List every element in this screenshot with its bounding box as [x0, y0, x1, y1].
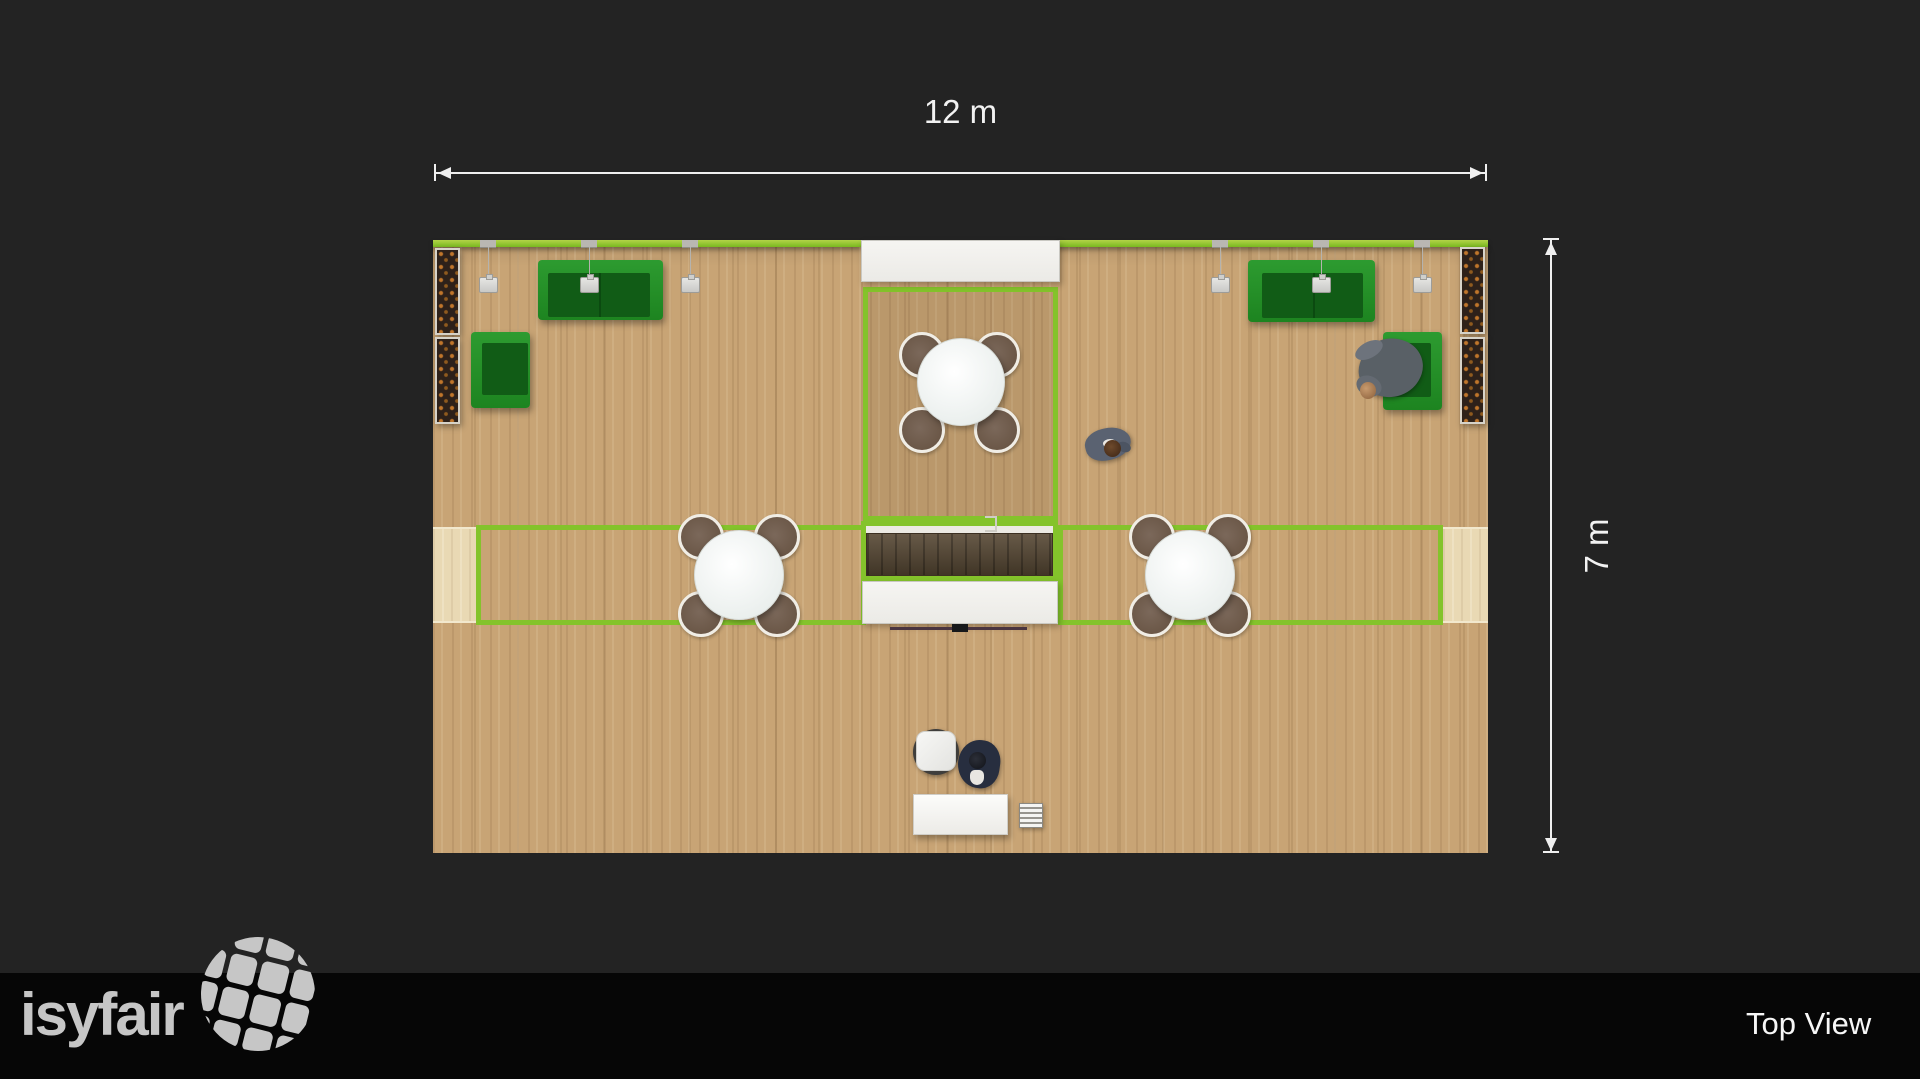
- person-sitting: [1354, 336, 1426, 404]
- counter-top-surface: [866, 533, 1053, 576]
- depth-dimension-endbar-bottom: [1543, 851, 1559, 853]
- stool-seat: [916, 731, 956, 771]
- walkway-strip-right: [1443, 527, 1488, 623]
- pendant-lamp-icon: [1413, 277, 1432, 293]
- green-sofa-left: [538, 260, 663, 320]
- width-dimension-endbar-left: [434, 164, 436, 181]
- screen-icon: [952, 624, 968, 632]
- isyfair-globe-icon: [198, 928, 316, 1061]
- width-dimension-line: [436, 172, 1485, 174]
- person-head: [1104, 440, 1121, 457]
- walkway-strip-left: [433, 527, 476, 623]
- planter-box: [1460, 247, 1485, 334]
- counter-desk: [861, 521, 1058, 581]
- arrow-up-icon: [1545, 242, 1557, 255]
- round-table-left: [694, 530, 784, 620]
- booth-width-label: 12 m: [433, 93, 1488, 131]
- counter-clamp-icon: [985, 516, 997, 532]
- booth-depth-label: 7 m: [1578, 518, 1616, 573]
- view-mode-label: Top View: [1746, 1006, 1871, 1042]
- width-dimension-endbar-right: [1485, 164, 1487, 181]
- sofa-seat: [548, 273, 650, 317]
- pendant-lamp-icon: [1312, 277, 1331, 293]
- person-head: [969, 752, 986, 769]
- sofa-seat-divider: [599, 273, 601, 317]
- round-table-right: [1145, 530, 1235, 620]
- arrow-left-icon: [438, 167, 451, 179]
- arrow-down-icon: [1545, 838, 1557, 851]
- person-head: [1360, 382, 1376, 399]
- booth-floorplan-canvas[interactable]: [433, 240, 1488, 853]
- zone-outline-left: [476, 525, 866, 625]
- person-walking: [1083, 426, 1139, 466]
- person-at-desk: [956, 738, 1004, 792]
- isyfair-top-view-screen: 12 m 7 m: [0, 0, 1920, 1079]
- planter-box: [1460, 337, 1485, 424]
- storage-room-bottom: [862, 581, 1058, 624]
- back-wall-left: [433, 240, 861, 247]
- pendant-lamp-icon: [479, 277, 498, 293]
- planter-box: [435, 248, 460, 335]
- arrow-right-icon: [1470, 167, 1483, 179]
- round-table-meeting: [917, 338, 1005, 426]
- isyfair-logo-text: isyfair: [20, 980, 183, 1049]
- storage-room-top: [861, 240, 1060, 282]
- drawer-unit: [1019, 803, 1043, 828]
- planter-box: [435, 337, 460, 424]
- pendant-lamp-icon: [1211, 277, 1230, 293]
- depth-dimension-endbar-top: [1543, 238, 1559, 240]
- green-armchair-left: [471, 332, 530, 408]
- pendant-lamp-icon: [681, 277, 700, 293]
- depth-dimension-line: [1550, 240, 1552, 853]
- armchair-seat: [482, 343, 528, 395]
- reception-desk: [913, 794, 1008, 835]
- person-shirt: [970, 770, 984, 785]
- pendant-lamp-icon: [580, 277, 599, 293]
